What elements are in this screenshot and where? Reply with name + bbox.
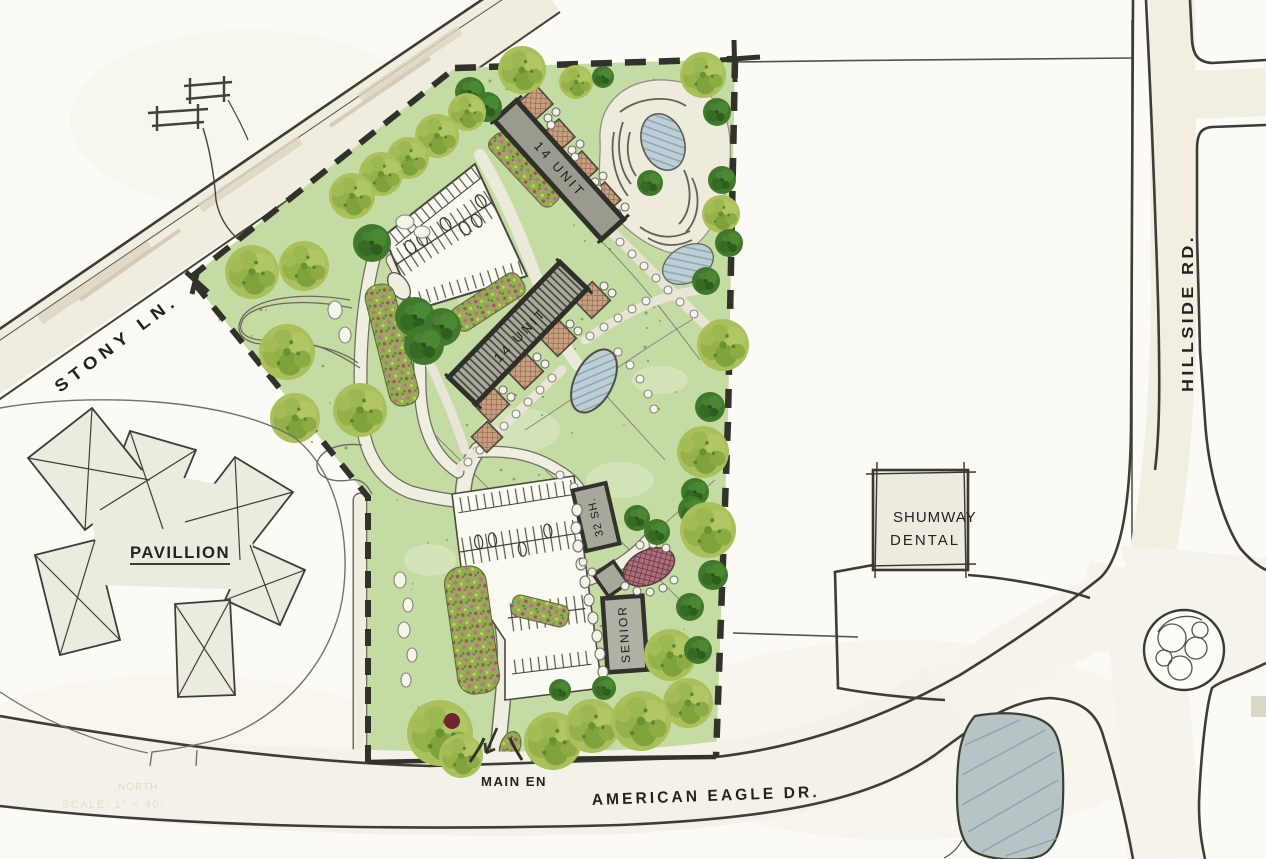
svg-text:PAVILLION: PAVILLION xyxy=(130,543,230,562)
svg-text:SCALE: 1" = 40': SCALE: 1" = 40' xyxy=(62,799,164,811)
svg-text:HILLSIDE RD.: HILLSIDE RD. xyxy=(1180,234,1197,392)
svg-text:NORTH: NORTH xyxy=(118,782,158,793)
svg-text:SHUMWAY: SHUMWAY xyxy=(893,509,977,526)
svg-text:DENTAL: DENTAL xyxy=(890,532,960,549)
svg-text:MAIN EN: MAIN EN xyxy=(481,774,547,789)
